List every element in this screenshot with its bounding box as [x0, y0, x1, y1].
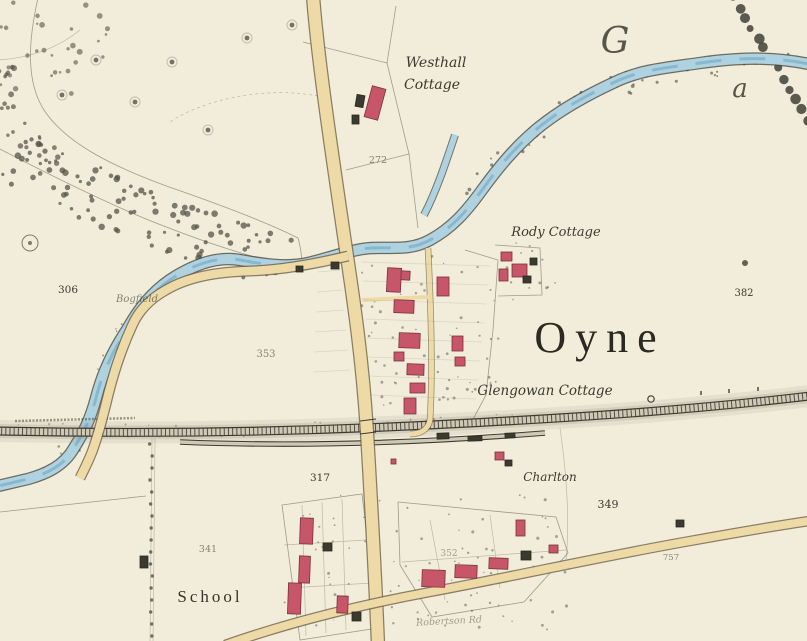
- tree-icon: [152, 208, 158, 214]
- tree-icon: [211, 210, 218, 217]
- tree-icon: [1, 173, 4, 176]
- tree-icon: [740, 13, 750, 23]
- tree-icon: [564, 571, 567, 574]
- tree-icon: [317, 541, 319, 543]
- tree-icon: [415, 329, 417, 331]
- map-viewport[interactable]: Westhall Cottage Rody Cottage Oyne Gleng…: [0, 0, 807, 641]
- tree-icon: [395, 530, 398, 533]
- tree-icon: [446, 387, 449, 390]
- tree-icon: [380, 381, 383, 384]
- tree-icon: [65, 185, 70, 190]
- tree-icon: [371, 305, 374, 308]
- building-dark: [505, 460, 512, 466]
- parcel-317: 317: [310, 472, 330, 484]
- tree-icon: [675, 80, 678, 83]
- tree-icon: [464, 604, 467, 607]
- tree-icon: [149, 610, 152, 613]
- tree-icon: [166, 247, 172, 253]
- tree-icon: [392, 622, 394, 624]
- parcel-306: 306: [58, 284, 78, 296]
- building-dark: [296, 266, 303, 272]
- tree-icon: [133, 192, 138, 197]
- tree-icon: [4, 73, 8, 77]
- tree-icon: [23, 122, 26, 125]
- tree-icon: [465, 192, 468, 195]
- tree-icon: [105, 26, 110, 31]
- tree-icon: [361, 272, 363, 274]
- building-red: [299, 556, 311, 583]
- building-red: [516, 520, 525, 536]
- tree-icon: [149, 190, 154, 195]
- tree-icon: [97, 13, 103, 19]
- tree-icon: [266, 238, 271, 243]
- tree-icon: [519, 494, 521, 496]
- tree-icon: [194, 245, 199, 250]
- label-bogfield: Bogfield: [115, 294, 158, 305]
- tree-icon: [116, 330, 118, 332]
- tree-icon: [457, 376, 459, 378]
- tree-icon: [47, 167, 53, 173]
- tree-icon: [150, 466, 153, 469]
- tree-icon: [153, 202, 157, 206]
- tree-icon: [528, 287, 530, 289]
- tree-icon: [374, 321, 377, 324]
- tree-icon: [523, 496, 525, 498]
- tree-icon: [150, 598, 153, 601]
- tree-icon: [476, 172, 479, 175]
- tree-icon: [334, 524, 336, 526]
- tree-icon: [469, 382, 471, 384]
- building-red: [455, 357, 465, 366]
- tree-icon: [437, 355, 440, 358]
- building-dark: [468, 436, 482, 441]
- tree-icon: [83, 2, 88, 7]
- tree-icon: [97, 40, 100, 43]
- tree-icon: [796, 104, 806, 114]
- label-charlton: Charlton: [523, 470, 576, 484]
- tree-icon: [398, 585, 400, 587]
- tree-icon: [177, 234, 180, 237]
- tree-icon: [476, 266, 478, 268]
- tree-icon: [70, 43, 76, 49]
- tree-icon: [79, 180, 82, 183]
- tree-icon: [25, 53, 29, 57]
- tree-icon: [395, 372, 398, 375]
- tree-icon: [546, 628, 548, 630]
- tree-icon: [447, 601, 448, 602]
- tree-icon: [486, 358, 488, 360]
- tree-icon: [390, 590, 392, 592]
- tree-icon: [391, 606, 393, 608]
- tree-icon: [742, 260, 748, 266]
- tree-icon: [456, 327, 458, 329]
- tree-icon: [25, 158, 29, 162]
- tree-icon: [268, 231, 274, 237]
- tree-icon: [247, 239, 251, 243]
- tree-icon: [374, 360, 377, 363]
- tree-icon: [714, 74, 716, 76]
- tree-icon: [42, 148, 47, 153]
- tree-icon: [448, 513, 450, 515]
- tree-icon: [217, 224, 222, 229]
- tree-icon: [55, 154, 61, 160]
- building-red: [512, 264, 527, 277]
- tree-icon: [558, 101, 561, 104]
- tree-icon: [9, 182, 14, 187]
- tree-icon: [710, 72, 713, 75]
- tree-icon: [371, 332, 373, 334]
- parcel-272: 272: [369, 155, 387, 166]
- tree-icon: [554, 282, 556, 284]
- building-red: [495, 452, 504, 460]
- tree-icon: [42, 48, 47, 53]
- post-tick: [700, 391, 702, 395]
- tree-icon: [115, 175, 121, 181]
- tree-icon: [8, 91, 14, 97]
- tree-icon: [11, 130, 15, 134]
- tree-icon: [258, 240, 261, 243]
- tree-icon: [109, 174, 114, 179]
- tree-icon: [35, 49, 39, 53]
- tree-icon: [149, 550, 152, 553]
- tree-icon: [59, 71, 62, 74]
- tree-icon: [545, 517, 547, 519]
- tree-icon: [11, 65, 17, 71]
- tree-icon: [451, 579, 452, 580]
- tree-icon: [545, 286, 548, 289]
- tree-icon: [332, 540, 334, 542]
- tree-icon: [329, 583, 331, 585]
- map-canvas: Westhall Cottage Rody Cottage Oyne Gleng…: [0, 0, 807, 641]
- tree-icon: [543, 136, 546, 139]
- tree-icon: [538, 281, 541, 284]
- tree-icon: [107, 214, 112, 219]
- tree-icon: [51, 54, 54, 57]
- building-red: [300, 518, 314, 544]
- tree-icon: [348, 547, 350, 549]
- tree-icon: [474, 388, 477, 391]
- tree-icon: [400, 293, 402, 295]
- tree-icon: [218, 230, 223, 235]
- building-dark: [676, 520, 684, 527]
- tree-icon: [147, 235, 151, 239]
- tree-icon: [478, 626, 481, 629]
- tree-icon: [476, 592, 478, 594]
- tree-icon: [389, 402, 392, 405]
- tree-icon: [423, 289, 426, 292]
- tree-icon: [150, 490, 153, 493]
- tree-icon: [147, 230, 152, 235]
- tree-icon: [206, 128, 211, 133]
- tree-icon: [328, 577, 330, 579]
- tree-icon: [37, 141, 42, 146]
- tree-icon: [515, 242, 517, 244]
- tree-icon: [10, 168, 16, 174]
- tree-icon: [98, 224, 104, 230]
- tree-icon: [383, 364, 386, 367]
- tree-icon: [19, 156, 25, 162]
- tree-icon: [18, 143, 24, 149]
- tree-icon: [497, 337, 499, 339]
- tree-icon: [86, 181, 91, 186]
- tree-icon: [2, 101, 7, 106]
- tree-icon: [204, 211, 209, 216]
- tree-icon: [779, 75, 788, 84]
- building-dark: [140, 556, 148, 568]
- tree-icon: [502, 615, 504, 617]
- tree-icon: [246, 223, 250, 227]
- tree-icon: [38, 171, 43, 176]
- tree-icon: [498, 605, 500, 607]
- tree-icon: [53, 70, 58, 75]
- tree-icon: [461, 547, 463, 549]
- tree-icon: [460, 498, 462, 500]
- tree-icon: [379, 500, 381, 502]
- tree-icon: [132, 210, 136, 214]
- tree-icon: [460, 271, 463, 274]
- tree-icon: [149, 502, 152, 505]
- tree-icon: [39, 22, 45, 28]
- tree-icon: [544, 498, 547, 501]
- tree-icon: [489, 602, 491, 604]
- tree-icon: [485, 548, 488, 551]
- tree-icon: [59, 167, 65, 173]
- tree-icon: [58, 202, 61, 205]
- tree-icon: [363, 517, 364, 518]
- tree-icon: [29, 137, 33, 141]
- building-dark: [355, 94, 365, 107]
- tree-icon: [530, 599, 533, 602]
- tree-icon: [97, 368, 99, 370]
- label-glengowan-cottage: Glengowan Cottage: [477, 383, 612, 399]
- building-red: [501, 252, 512, 261]
- tree-icon: [490, 572, 492, 574]
- tree-icon: [315, 624, 317, 626]
- tree-icon: [631, 84, 635, 88]
- building-red: [287, 583, 301, 614]
- tree-icon: [121, 197, 125, 201]
- tree-icon: [458, 562, 460, 564]
- tree-icon: [470, 594, 472, 596]
- tree-icon: [468, 188, 472, 192]
- tree-icon: [228, 240, 234, 246]
- tree-icon: [48, 161, 51, 164]
- tree-icon: [736, 4, 746, 14]
- tree-icon: [38, 135, 41, 138]
- tree-icon: [151, 196, 154, 199]
- building-red: [401, 271, 410, 280]
- building-dark: [505, 433, 515, 439]
- tree-icon: [236, 221, 240, 225]
- label-river-g: G: [601, 21, 630, 62]
- tree-icon: [333, 517, 335, 519]
- tree-icon: [531, 250, 533, 252]
- tree-icon: [716, 75, 718, 77]
- tree-icon: [61, 192, 67, 198]
- tree-icon: [435, 611, 437, 613]
- building-red: [394, 352, 404, 361]
- tree-icon: [6, 133, 9, 136]
- tree-icon: [70, 207, 74, 211]
- tree-icon: [460, 316, 463, 319]
- tree-icon: [446, 352, 449, 355]
- tree-icon: [483, 572, 484, 573]
- tree-icon: [327, 572, 330, 575]
- tree-icon: [8, 73, 12, 77]
- tree-icon: [491, 549, 493, 551]
- tree-icon: [467, 552, 469, 554]
- tree-icon: [348, 583, 350, 585]
- tree-icon: [547, 526, 549, 528]
- tree-icon: [73, 60, 78, 65]
- tree-icon: [489, 289, 491, 291]
- tree-icon: [39, 162, 42, 165]
- post-tick: [728, 389, 730, 393]
- tree-icon: [115, 228, 120, 233]
- tree-icon: [204, 240, 208, 244]
- tree-icon: [490, 157, 492, 159]
- tree-icon: [0, 106, 4, 110]
- tree-icon: [656, 81, 659, 84]
- tree-icon: [151, 454, 154, 457]
- building-red: [489, 558, 508, 570]
- tree-icon: [149, 538, 152, 541]
- tree-icon: [121, 323, 123, 325]
- tree-icon: [11, 104, 16, 109]
- tree-icon: [4, 26, 9, 31]
- tree-icon: [641, 79, 644, 82]
- tree-icon: [437, 371, 439, 373]
- tree-icon: [340, 495, 341, 496]
- building-red: [407, 364, 424, 376]
- label-rody-cottage: Rody Cottage: [510, 225, 601, 240]
- tree-icon: [28, 151, 32, 155]
- tree-icon: [189, 205, 195, 211]
- building-red: [422, 570, 446, 588]
- tree-icon: [182, 205, 188, 211]
- building-dark: [521, 551, 531, 560]
- tree-icon: [541, 556, 544, 559]
- tree-icon: [454, 561, 456, 563]
- tree-icon: [23, 140, 27, 144]
- tree-icon: [309, 513, 311, 515]
- tree-icon: [255, 233, 259, 237]
- tree-icon: [318, 526, 320, 528]
- tree-icon: [420, 537, 423, 540]
- tree-icon: [242, 247, 247, 252]
- tree-icon: [151, 574, 154, 577]
- tree-icon: [371, 265, 373, 267]
- tree-icon: [302, 515, 304, 517]
- tree-icon: [6, 106, 10, 110]
- tree-icon: [493, 300, 495, 302]
- tree-icon: [477, 557, 479, 559]
- tree-icon: [511, 621, 512, 622]
- tree-icon: [66, 47, 69, 50]
- tree-icon: [716, 71, 718, 73]
- tree-icon: [488, 376, 491, 379]
- building-red: [391, 459, 396, 464]
- tree-icon: [90, 176, 96, 182]
- tree-icon: [630, 92, 633, 95]
- tree-icon: [284, 601, 286, 603]
- building-red: [452, 336, 463, 351]
- tree-icon: [52, 145, 57, 150]
- tree-icon: [496, 151, 499, 154]
- tree-icon: [790, 94, 801, 105]
- tree-icon: [447, 398, 449, 400]
- tree-icon: [392, 336, 394, 338]
- tree-icon: [458, 530, 459, 531]
- tree-icon: [529, 245, 531, 247]
- tree-icon: [368, 335, 371, 338]
- tree-icon: [471, 610, 473, 612]
- parcel-353: 353: [256, 349, 275, 360]
- tree-icon: [105, 33, 108, 36]
- tree-icon: [150, 634, 153, 637]
- building-dark: [323, 543, 332, 551]
- label-town-oyne: Oyne: [534, 313, 665, 362]
- building-dark: [437, 433, 449, 439]
- building-red: [404, 398, 416, 414]
- tree-icon: [122, 189, 126, 193]
- label-westhall-2: Cottage: [404, 77, 460, 93]
- tree-icon: [471, 391, 473, 393]
- tree-icon: [176, 219, 180, 223]
- tree-icon: [415, 292, 417, 294]
- tree-icon: [35, 14, 40, 19]
- tree-icon: [11, 1, 15, 5]
- tree-icon: [102, 354, 104, 356]
- tree-icon: [481, 518, 484, 521]
- tree-icon: [115, 328, 117, 330]
- tree-icon: [334, 593, 337, 596]
- tree-icon: [44, 158, 48, 162]
- tree-icon: [785, 86, 793, 94]
- tree-icon: [747, 25, 754, 32]
- tree-icon: [54, 161, 59, 166]
- building-dark: [331, 262, 339, 269]
- tree-icon: [333, 619, 334, 620]
- tree-icon: [289, 238, 294, 243]
- tree-icon: [541, 624, 544, 627]
- tree-icon: [449, 334, 450, 335]
- tree-icon: [245, 36, 250, 41]
- tree-icon: [512, 299, 514, 301]
- tree-icon: [51, 185, 56, 190]
- tree-icon: [196, 208, 200, 212]
- tree-icon: [90, 198, 95, 203]
- parcel-382: 382: [734, 288, 753, 299]
- label-river-a: a: [732, 74, 748, 104]
- tree-icon: [91, 216, 96, 221]
- building-red: [386, 268, 401, 293]
- tree-icon: [99, 166, 102, 169]
- tree-icon: [138, 187, 144, 193]
- tree-icon: [490, 338, 492, 340]
- building-dark: [530, 258, 537, 265]
- tree-icon: [148, 478, 151, 481]
- tree-icon: [542, 516, 544, 518]
- tree-icon: [383, 404, 385, 406]
- label-westhall-1: Westhall: [406, 55, 467, 71]
- tree-icon: [417, 611, 419, 613]
- tree-icon: [290, 23, 295, 28]
- tree-icon: [401, 326, 404, 329]
- tree-icon: [149, 586, 152, 589]
- tree-icon: [184, 256, 187, 259]
- tree-icon: [114, 209, 119, 214]
